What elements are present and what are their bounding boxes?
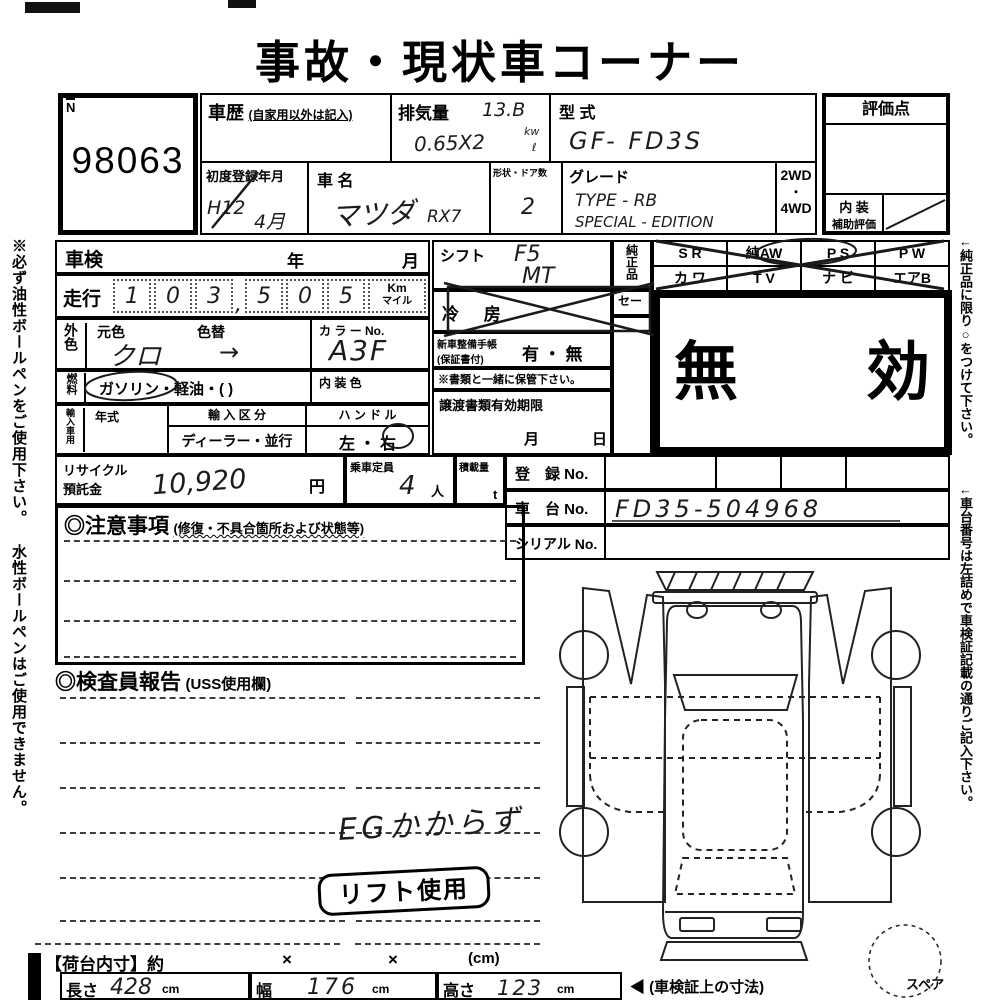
- load-cell: 積載量 t: [455, 455, 505, 505]
- left-sill: [567, 687, 584, 806]
- booklet-note: ※書類と一緒に保管下さい。: [438, 374, 581, 386]
- right-side-panel: [809, 588, 920, 902]
- options-grid: S R 純AW P S P W カ ワ T V ナ ビ エアB: [652, 240, 950, 292]
- interior-color-label: 内 装 色: [319, 374, 362, 391]
- displacement-cell: 排気量 13.B 0.65X2 kw ℓ: [390, 93, 551, 163]
- drive-2wd-label: 2WD: [777, 167, 815, 183]
- auction-number-value: 98063: [63, 140, 193, 182]
- scan-artifact: [228, 0, 256, 8]
- interior-score-cell: 内 装 補助評価: [826, 193, 884, 231]
- ruled-line: [64, 656, 516, 658]
- option-airbag: エアB: [874, 265, 950, 292]
- registration-plate-divider: [845, 457, 847, 488]
- handle-right-option: 右: [380, 436, 396, 453]
- capacity-cell: 乗車定員 4 人: [345, 455, 455, 505]
- service-booklet-labels: 新車整備手帳 (保証書付): [437, 336, 497, 366]
- fuel-gasoline-option: ガソリン: [99, 381, 159, 398]
- fuel-label: 燃料: [63, 373, 86, 402]
- interior-score-slash-cell: [884, 193, 946, 231]
- exterior-color-row: 外色 元色 クロ 色替 → カ ラ ー No. A3F: [55, 318, 430, 370]
- mileage-row: 走行 1 0 3 , 5 0 5 Km マイル: [55, 274, 430, 318]
- shaken-row: 車検 年 月: [55, 240, 430, 274]
- transfer-day-label: 日: [592, 428, 607, 449]
- left-margin-note: ※必ず油性ボールペンをご使用下さい。 水性ボールペンはご使用できません。: [8, 238, 29, 838]
- right-margin-note-genuine: ←純正品に限り○をつけて下さい。: [956, 234, 975, 504]
- shift-cell: シフト F5 MT: [432, 240, 612, 290]
- service-booklet-cell: 新車整備手帳 (保証書付) 有 ・ 無: [432, 332, 612, 368]
- service-booklet-label-1: 新車整備手帳: [437, 336, 497, 351]
- cargo-dims-times-1: ×: [282, 950, 292, 970]
- transfer-docs-cell: 譲渡書類有効期限 月 日: [432, 390, 612, 455]
- capacity-unit: 人: [431, 481, 444, 500]
- import-class-cell: 輸 入 区 分 ディーラー・並行: [169, 406, 305, 453]
- option-power-windows: P W: [874, 240, 950, 267]
- genuine-parts-cell: 純正品: [612, 240, 652, 290]
- chassis-label-divider: [604, 492, 606, 523]
- shaken-month-label: 月: [402, 247, 419, 272]
- front-fixture-right: [761, 602, 781, 618]
- registration-label-divider: [604, 457, 606, 488]
- first-registration-label: 初度登録年月: [206, 166, 284, 185]
- height-label: 高さ: [443, 977, 475, 1000]
- option-alloy-wheels: 純AW: [726, 240, 802, 267]
- body-doors-cell: 形状・ドア数 2: [489, 161, 563, 235]
- grade-cell: グレード TYPE - RB SPECIAL - EDITION: [561, 161, 777, 235]
- capacity-value: 4: [399, 471, 416, 501]
- ruled-line: [60, 697, 345, 699]
- load-unit: t: [493, 487, 497, 502]
- interior-color-divider: [310, 372, 312, 402]
- drive-4wd-label: 4WD: [777, 200, 815, 216]
- grade-label: グレード: [569, 166, 629, 187]
- grade-value-1: TYPE - RB: [575, 191, 657, 211]
- unit-mile-label: マイル: [370, 296, 424, 308]
- displacement-unit-l: ℓ: [532, 141, 537, 154]
- scan-artifact: [25, 2, 80, 13]
- width-label: 幅: [256, 977, 272, 1000]
- left-side-panel: [560, 588, 665, 902]
- model-code-label: 型 式: [559, 99, 595, 123]
- service-booklet-label-2: (保証書付): [437, 351, 497, 366]
- ac-label: 冷 房: [442, 300, 511, 325]
- height-value: 123: [497, 976, 543, 1000]
- odometer-digit-box: 5: [245, 279, 283, 313]
- ruled-line: [64, 540, 516, 542]
- genuine-parts-empty-cell: [612, 316, 652, 455]
- displacement-unit-kw: kw: [524, 125, 539, 138]
- odometer-comma: ,: [235, 292, 242, 317]
- displacement-value-2: 0.65X2: [414, 130, 486, 156]
- length-label: 長さ: [66, 977, 98, 1000]
- color-no-divider: [310, 320, 312, 368]
- recycle-deposit-label: リサイクル 預託金: [63, 460, 127, 498]
- front-hatch-strip: [657, 572, 813, 590]
- odometer-digit-box: 5: [327, 279, 365, 313]
- shaken-label: 車検: [65, 245, 103, 272]
- first-registration-era: H12: [207, 197, 245, 219]
- car-name-cell: 車 名 マツダ RX7: [307, 161, 491, 235]
- car-name-label: 車 名: [317, 167, 353, 191]
- ruled-line: [355, 943, 540, 945]
- registration-plate-divider: [780, 457, 782, 488]
- recycle-deposit-value: 10,920: [151, 464, 247, 502]
- front-bar: [653, 592, 817, 603]
- import-class-value: ディーラー・並行: [169, 431, 305, 451]
- length-cell: 長さ 428 cm: [60, 972, 250, 1000]
- invalid-stamp-text: 無 効: [660, 298, 944, 446]
- ac-cell: 冷 房: [432, 290, 612, 332]
- odometer-digit-box: 1: [113, 279, 151, 313]
- score-box-empty: [826, 125, 946, 193]
- ruled-line: [356, 920, 540, 922]
- service-booklet-value: 有 ・ 無: [522, 340, 582, 365]
- chassis-no-value: FD35-504968: [615, 495, 822, 523]
- auction-number-box: N 98063: [58, 93, 198, 235]
- grade-value-2: SPECIAL - EDITION: [575, 213, 714, 231]
- length-value: 428: [110, 975, 152, 1000]
- chassis-no-label: 車 台 No.: [515, 498, 588, 519]
- right-margin-note-chassis: ←車台番号は左詰めで車検証記載の通りご記入下さい。: [956, 482, 975, 912]
- ruled-line: [60, 832, 345, 834]
- ruled-line: [60, 877, 345, 879]
- model-code-cell: 型 式 GF- FD3S: [549, 93, 817, 163]
- recycle-deposit-cell: リサイクル 預託金 10,920 円: [55, 455, 345, 505]
- displacement-value-1: 13.B: [482, 99, 525, 121]
- floor-dashed-outline: [590, 697, 880, 812]
- import-class-label: 輸 入 区 分: [169, 406, 305, 427]
- inspector-report-title: ◎検査員報告: [55, 671, 181, 694]
- car-top-view-diagram: [545, 560, 955, 1000]
- cargo-dims-unit: (cm): [468, 950, 500, 967]
- notes-box: ◎注意事項 (修復・不具合箇所および状態等): [55, 505, 525, 665]
- body-doors-label: 形状・ドア数: [493, 166, 547, 179]
- fuel-row: 燃料 ガソリン・軽油・( ) 内 装 色: [55, 370, 430, 404]
- recycle-label-line1: リサイクル: [63, 460, 127, 479]
- cargo-dims-times-2: ×: [388, 950, 398, 970]
- score-box-title: 評価点: [826, 97, 946, 125]
- inspector-report-subtitle: (USS使用欄): [185, 676, 271, 693]
- registration-plate-divider: [715, 457, 717, 488]
- option-tv: T V: [726, 265, 802, 292]
- notes-subtitle: (修復・不具合箇所および状態等): [173, 521, 364, 536]
- capacity-label: 乗車定員: [350, 459, 394, 475]
- exterior-color-label: 外色: [61, 323, 87, 369]
- option-sr: S R: [652, 240, 728, 267]
- drive-dot: ・: [777, 183, 815, 200]
- ruled-line: [60, 787, 345, 789]
- spare-tire-circle: [869, 925, 941, 997]
- inspector-report-header: ◎検査員報告 (USS使用欄): [55, 666, 271, 696]
- color-change-value: →: [219, 338, 239, 366]
- option-power-steering: P S: [800, 240, 876, 267]
- se-cell: セー: [612, 290, 652, 316]
- score-box: 評価点 内 装 補助評価: [822, 93, 950, 235]
- vehicle-history-note: (自家用以外は記入): [248, 108, 352, 122]
- shift-label: シフト: [440, 245, 485, 266]
- body-doors-value: 2: [521, 195, 535, 220]
- fuel-other-options: ・軽油・( ): [159, 381, 233, 398]
- registration-no-row: 登 録 No.: [505, 455, 950, 490]
- ruled-line: [60, 742, 345, 744]
- shaken-year-label: 年: [287, 247, 304, 272]
- car-name-value-model: RX7: [427, 207, 461, 227]
- auction-sheet-page: 事故・現状車コーナー ※必ず油性ボールペンをご使用下さい。 水性ボールペンはご使…: [0, 0, 1000, 1000]
- first-registration-cell: 初度登録年月 H12 4月: [200, 161, 309, 235]
- fuel-options: ガソリン・軽油・( ): [99, 378, 233, 399]
- transfer-month-label: 月: [524, 428, 539, 449]
- recycle-deposit-unit: 円: [309, 473, 325, 497]
- import-row: 輸入車用 年式 輸 入 区 分 ディーラー・並行 ハ ン ド ル 左 ・ 右: [55, 404, 430, 455]
- right-sill: [894, 687, 911, 806]
- import-label: 輸入車用: [64, 408, 85, 452]
- rear-slot-left: [680, 918, 714, 931]
- left-edge-mark: [28, 953, 41, 1000]
- color-no-value: A3F: [329, 334, 388, 367]
- invalid-stamp-box: 無 効: [652, 290, 952, 455]
- odometer-digit-box: 0: [154, 279, 192, 313]
- auction-number-label: N: [66, 98, 75, 115]
- vehicle-history-label: 車歴: [208, 99, 244, 125]
- first-registration-month: 4月: [254, 207, 285, 234]
- model-code-value: GF- FD3S: [569, 127, 703, 155]
- rear-strip: [661, 942, 807, 960]
- shift-value-2: MT: [522, 264, 554, 289]
- ruled-line: [356, 697, 540, 699]
- displacement-label: 排気量: [398, 99, 449, 124]
- genuine-parts-label: 純正品: [624, 244, 641, 290]
- option-leather: カ ワ: [652, 265, 728, 292]
- ruled-line: [35, 943, 340, 945]
- unit-km-label: Km: [370, 281, 424, 296]
- transfer-docs-label: 譲渡書類有効期限: [439, 395, 543, 414]
- serial-no-row: シリアル No.: [505, 525, 950, 560]
- chassis-no-row: 車 台 No. FD35-504968: [505, 490, 950, 525]
- lift-used-stamp: リフト使用: [317, 866, 491, 917]
- registration-no-label: 登 録 No.: [515, 463, 588, 484]
- car-name-value: マツダ: [330, 191, 416, 235]
- booklet-note-row: ※書類と一緒に保管下さい。: [432, 368, 612, 390]
- base-color-value: クロ: [109, 336, 161, 373]
- ruled-line: [64, 580, 516, 582]
- handle-left-option: 左: [339, 436, 355, 453]
- page-title: 事故・現状車コーナー: [180, 26, 820, 91]
- windshield: [674, 675, 797, 710]
- option-navi: ナ ビ: [800, 265, 876, 292]
- width-cell: 幅 176 cm: [250, 972, 437, 1000]
- ruled-line: [356, 787, 540, 789]
- rear-window-dashed: [675, 858, 795, 894]
- interior-score-label-1: 内 装: [826, 197, 882, 216]
- ruled-line: [356, 742, 540, 744]
- drive-type-cell: 2WD ・ 4WD: [775, 161, 817, 235]
- se-label: セー: [618, 294, 642, 308]
- mileage-label: 走行: [63, 284, 101, 311]
- front-fixture-left: [687, 602, 707, 618]
- odometer-unit-box: Km マイル: [368, 279, 426, 313]
- handle-label: ハ ン ド ル: [307, 406, 428, 427]
- handle-cell: ハ ン ド ル 左 ・ 右: [307, 406, 428, 453]
- year-model-label: 年式: [95, 408, 119, 425]
- notes-title: ◎注意事項: [64, 510, 169, 540]
- right-front-wheel: [872, 631, 920, 679]
- width-value: 176: [307, 975, 358, 1000]
- recycle-label-line2: 預託金: [63, 479, 127, 498]
- odometer-digit-box: 0: [286, 279, 324, 313]
- vehicle-history-cell: 車歴 (自家用以外は記入): [200, 93, 392, 163]
- interior-score-label-2: 補助評価: [826, 216, 882, 232]
- odometer-digit-box: 3: [195, 279, 233, 313]
- serial-label-divider: [604, 527, 606, 558]
- handle-dot: ・: [359, 436, 375, 453]
- rear-slot-right: [767, 918, 801, 931]
- cabin-dashed-outline: [683, 720, 787, 850]
- ruled-line: [60, 920, 345, 922]
- width-cm: cm: [372, 982, 389, 996]
- length-cm: cm: [162, 982, 179, 996]
- inspector-handwritten-note: EGかからず: [337, 795, 525, 849]
- serial-no-label: シリアル No.: [515, 534, 597, 554]
- right-rear-wheel: [872, 808, 920, 856]
- load-label: 積載量: [459, 459, 489, 474]
- ruled-line: [64, 620, 516, 622]
